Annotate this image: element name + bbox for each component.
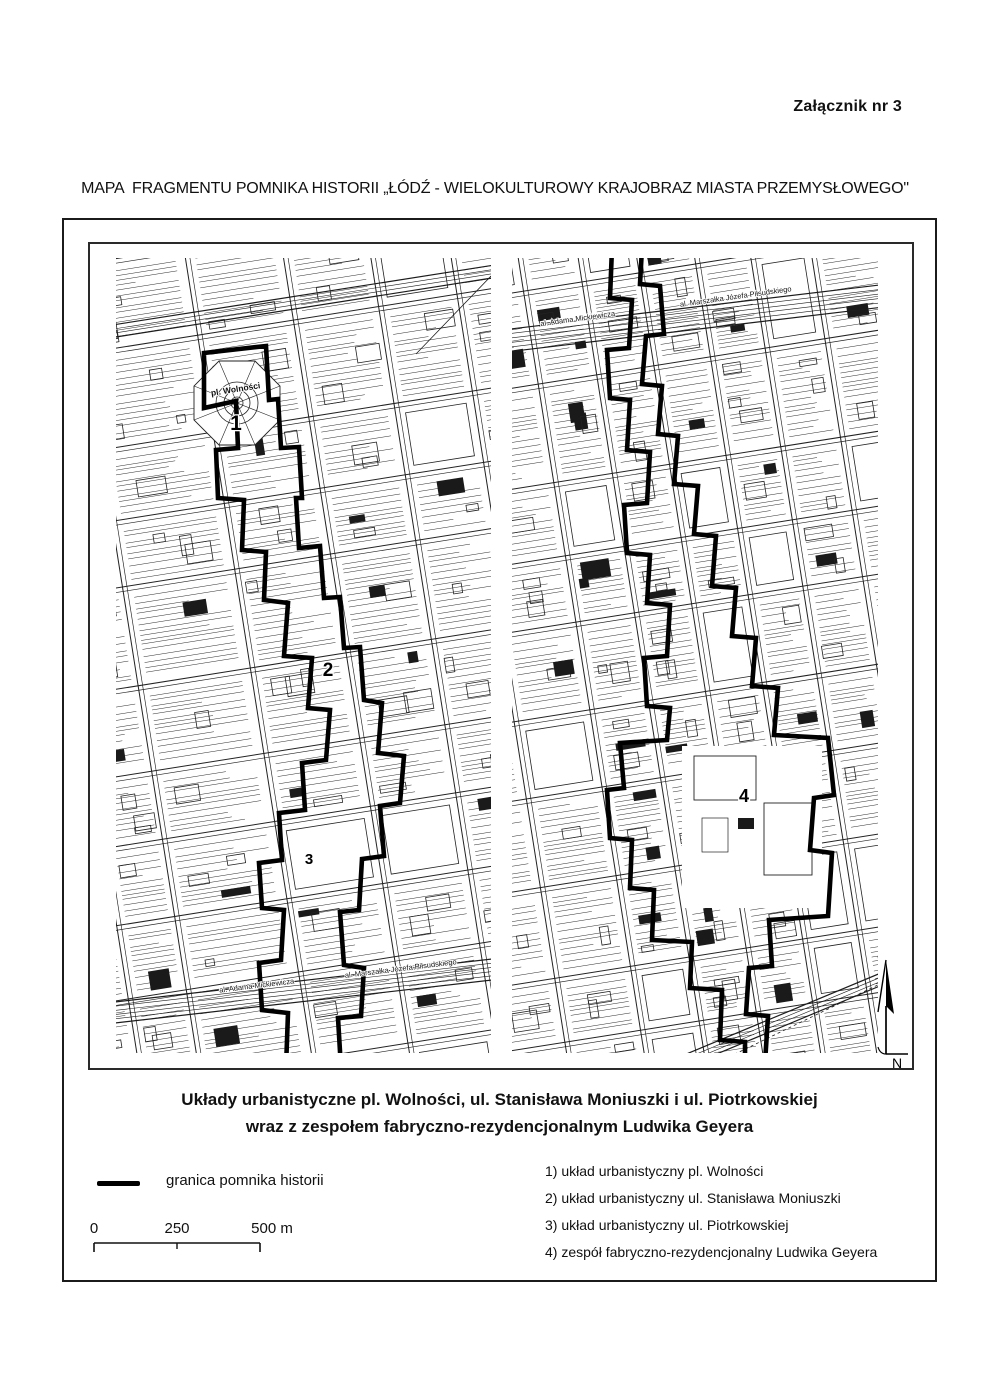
- scale-tick-0: 0: [90, 1220, 98, 1237]
- city-map-right: al. Adama Mickiewicza al. Marszałka Józe…: [512, 258, 878, 1053]
- attachment-label: Załącznik nr 3: [793, 98, 902, 116]
- scale-bar-line: [92, 1240, 264, 1254]
- list-item: 2) układ urbanistyczny ul. Stanisława Mo…: [545, 1185, 877, 1212]
- map-figure: pl. Wolności 1 2 3 al. Adama Mickiewicza…: [62, 218, 937, 1282]
- map-caption-line1: Układy urbanistyczne pl. Wolności, ul. S…: [64, 1086, 935, 1113]
- north-n-label: N: [892, 1055, 902, 1070]
- geyer-complex-shape: [682, 746, 822, 908]
- scale-tick-250: 250: [164, 1220, 189, 1237]
- north-arrow-icon: N: [862, 954, 910, 1070]
- area-number-4: 4: [739, 786, 749, 806]
- numbered-reference-list: 1) układ urbanistyczny pl. Wolności 2) u…: [545, 1158, 877, 1266]
- area-number-2: 2: [323, 660, 334, 681]
- list-item: 3) układ urbanistyczny ul. Piotrkowskiej: [545, 1212, 877, 1239]
- boundary-line-swatch: [97, 1181, 140, 1186]
- page-title: MAPA FRAGMENTU POMNIKA HISTORII „ŁÓDŹ - …: [0, 180, 990, 198]
- map-caption: Układy urbanistyczne pl. Wolności, ul. S…: [64, 1086, 935, 1140]
- list-item: 4) zespół fabryczno-rezydencjonalny Ludw…: [545, 1239, 877, 1266]
- street-label-pilsudskiego-right: al. Marszałka Józefa Piłsudskiego: [679, 284, 792, 309]
- area-number-3: 3: [305, 851, 313, 868]
- city-map-left: pl. Wolności 1 2 3 al. Adama Mickiewicza…: [116, 258, 491, 1053]
- scale-tick-500: 500 m: [251, 1220, 293, 1237]
- street-label-mickiewicza-left: al. Adama Mickiewicza: [219, 976, 296, 994]
- map-frame: pl. Wolności 1 2 3 al. Adama Mickiewicza…: [88, 242, 914, 1070]
- monument-boundary-left: [204, 346, 404, 1053]
- area-number-1: 1: [230, 412, 242, 435]
- list-item: 1) układ urbanistyczny pl. Wolności: [545, 1158, 877, 1185]
- scale-bar: 0 250 500 m: [94, 1220, 354, 1262]
- boundary-label: granica pomnika historii: [166, 1172, 324, 1189]
- map-caption-line2: wraz z zespołem fabryczno-rezydencjonaln…: [64, 1113, 935, 1140]
- legend-boundary: granica pomnika historii: [97, 1172, 324, 1189]
